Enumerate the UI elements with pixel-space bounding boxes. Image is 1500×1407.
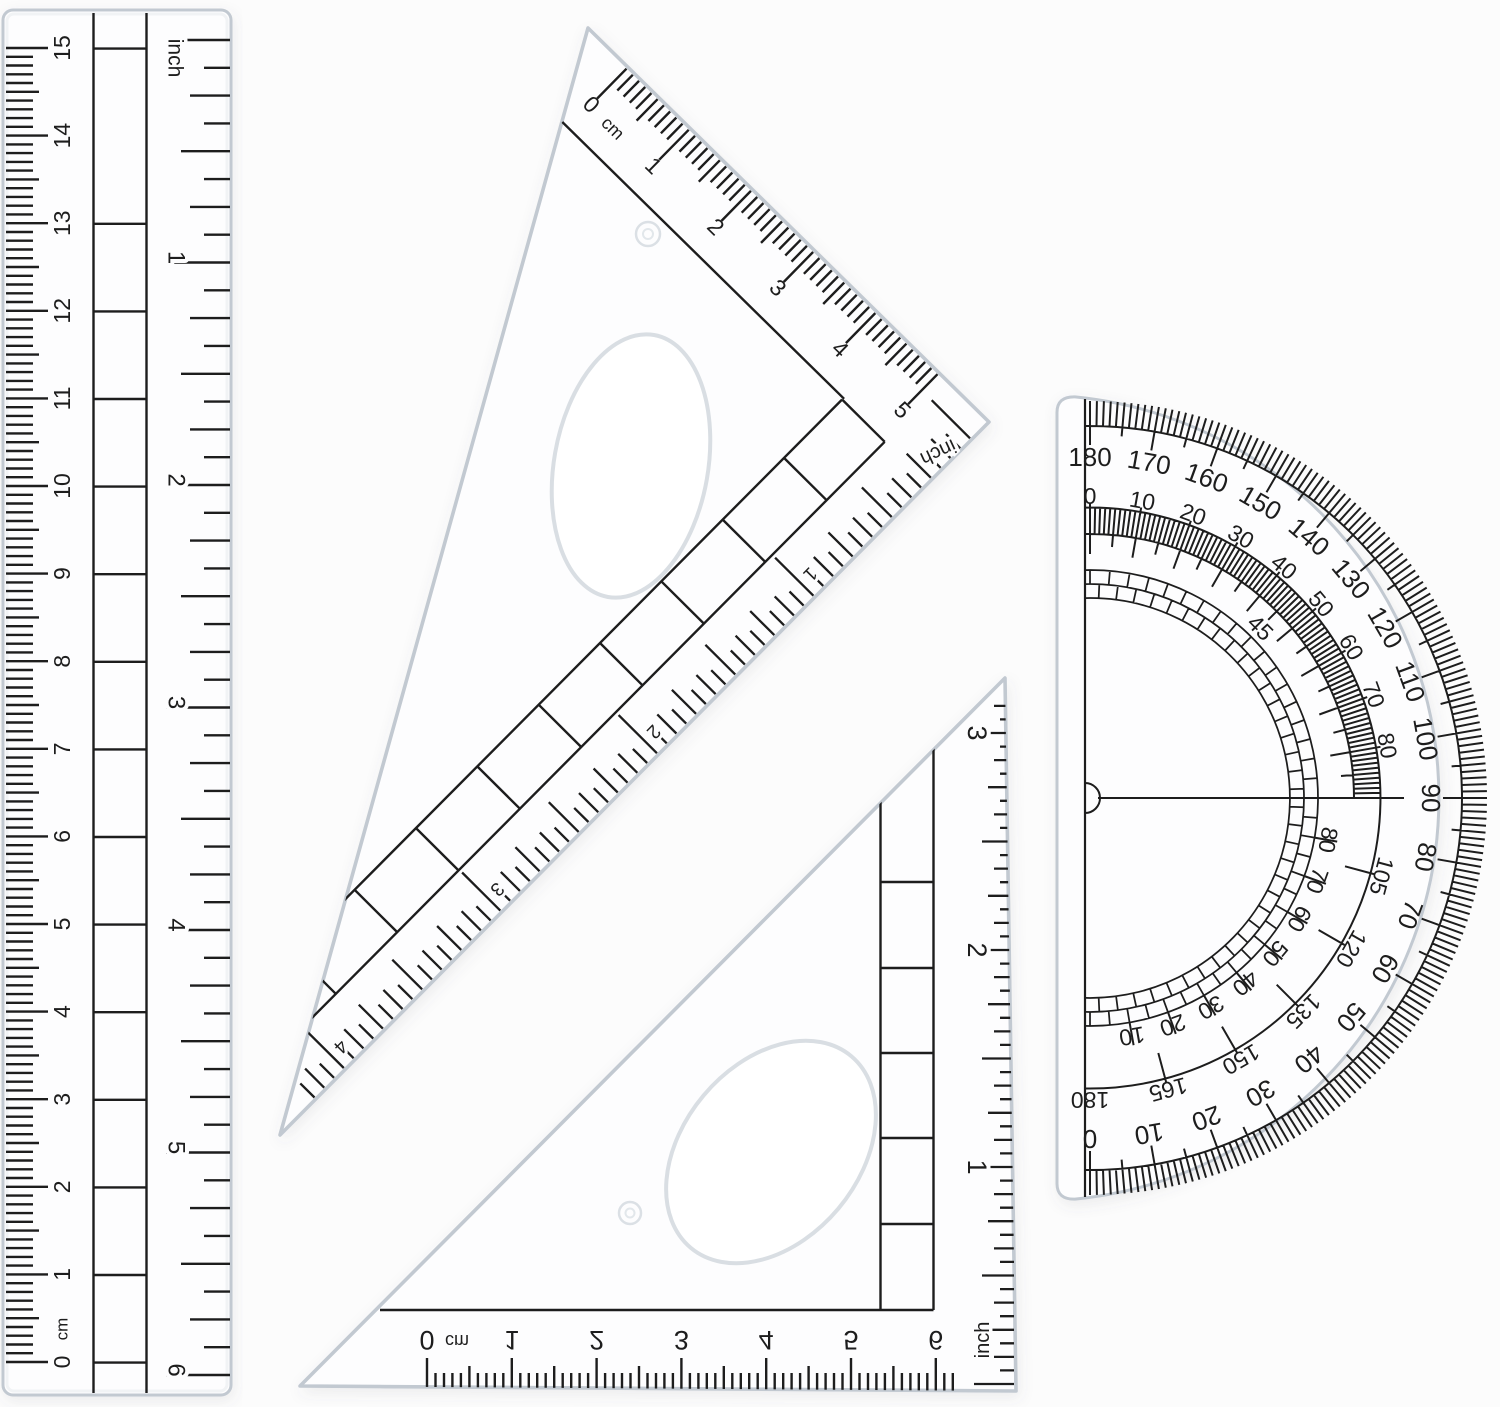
svg-text:2: 2 xyxy=(49,1180,75,1193)
svg-text:13: 13 xyxy=(49,210,75,236)
svg-text:3: 3 xyxy=(962,725,992,740)
svg-text:15: 15 xyxy=(49,35,75,61)
svg-text:80: 80 xyxy=(1409,840,1444,874)
svg-text:1: 1 xyxy=(163,251,190,264)
svg-text:10: 10 xyxy=(49,473,75,499)
svg-text:inch: inch xyxy=(972,1322,994,1359)
svg-text:cm: cm xyxy=(445,1331,469,1351)
svg-text:1: 1 xyxy=(962,1159,992,1174)
svg-text:6: 6 xyxy=(928,1325,943,1355)
svg-text:2: 2 xyxy=(163,473,190,486)
svg-text:3: 3 xyxy=(163,696,190,709)
svg-text:cm: cm xyxy=(53,1318,72,1341)
svg-text:5: 5 xyxy=(163,1141,190,1154)
svg-text:0: 0 xyxy=(1083,1124,1097,1154)
svg-text:10: 10 xyxy=(1132,1117,1166,1152)
svg-text:3: 3 xyxy=(49,1093,75,1106)
svg-text:11: 11 xyxy=(49,386,75,410)
svg-text:2: 2 xyxy=(589,1325,604,1355)
svg-text:6: 6 xyxy=(163,1363,190,1376)
svg-text:1: 1 xyxy=(49,1268,75,1281)
svg-text:90: 90 xyxy=(1416,784,1446,813)
svg-text:1: 1 xyxy=(504,1325,519,1355)
svg-text:inch: inch xyxy=(164,39,187,78)
svg-text:4: 4 xyxy=(759,1325,774,1355)
svg-text:10: 10 xyxy=(1128,486,1158,516)
svg-text:14: 14 xyxy=(49,123,75,149)
svg-text:180: 180 xyxy=(1068,442,1111,472)
svg-text:0: 0 xyxy=(49,1356,75,1369)
svg-text:6: 6 xyxy=(49,830,75,843)
svg-text:8: 8 xyxy=(49,655,75,668)
svg-text:4: 4 xyxy=(49,1005,75,1018)
svg-text:9: 9 xyxy=(49,567,75,580)
svg-text:3: 3 xyxy=(674,1325,689,1355)
svg-text:80: 80 xyxy=(1372,731,1402,761)
svg-text:7: 7 xyxy=(49,742,75,755)
svg-text:0: 0 xyxy=(419,1325,434,1355)
svg-text:5: 5 xyxy=(843,1325,858,1355)
svg-text:180: 180 xyxy=(1071,1087,1109,1113)
svg-text:4: 4 xyxy=(163,918,190,931)
svg-text:2: 2 xyxy=(962,942,992,957)
svg-text:0: 0 xyxy=(1084,483,1097,509)
svg-text:12: 12 xyxy=(49,298,75,324)
svg-text:5: 5 xyxy=(49,918,75,931)
